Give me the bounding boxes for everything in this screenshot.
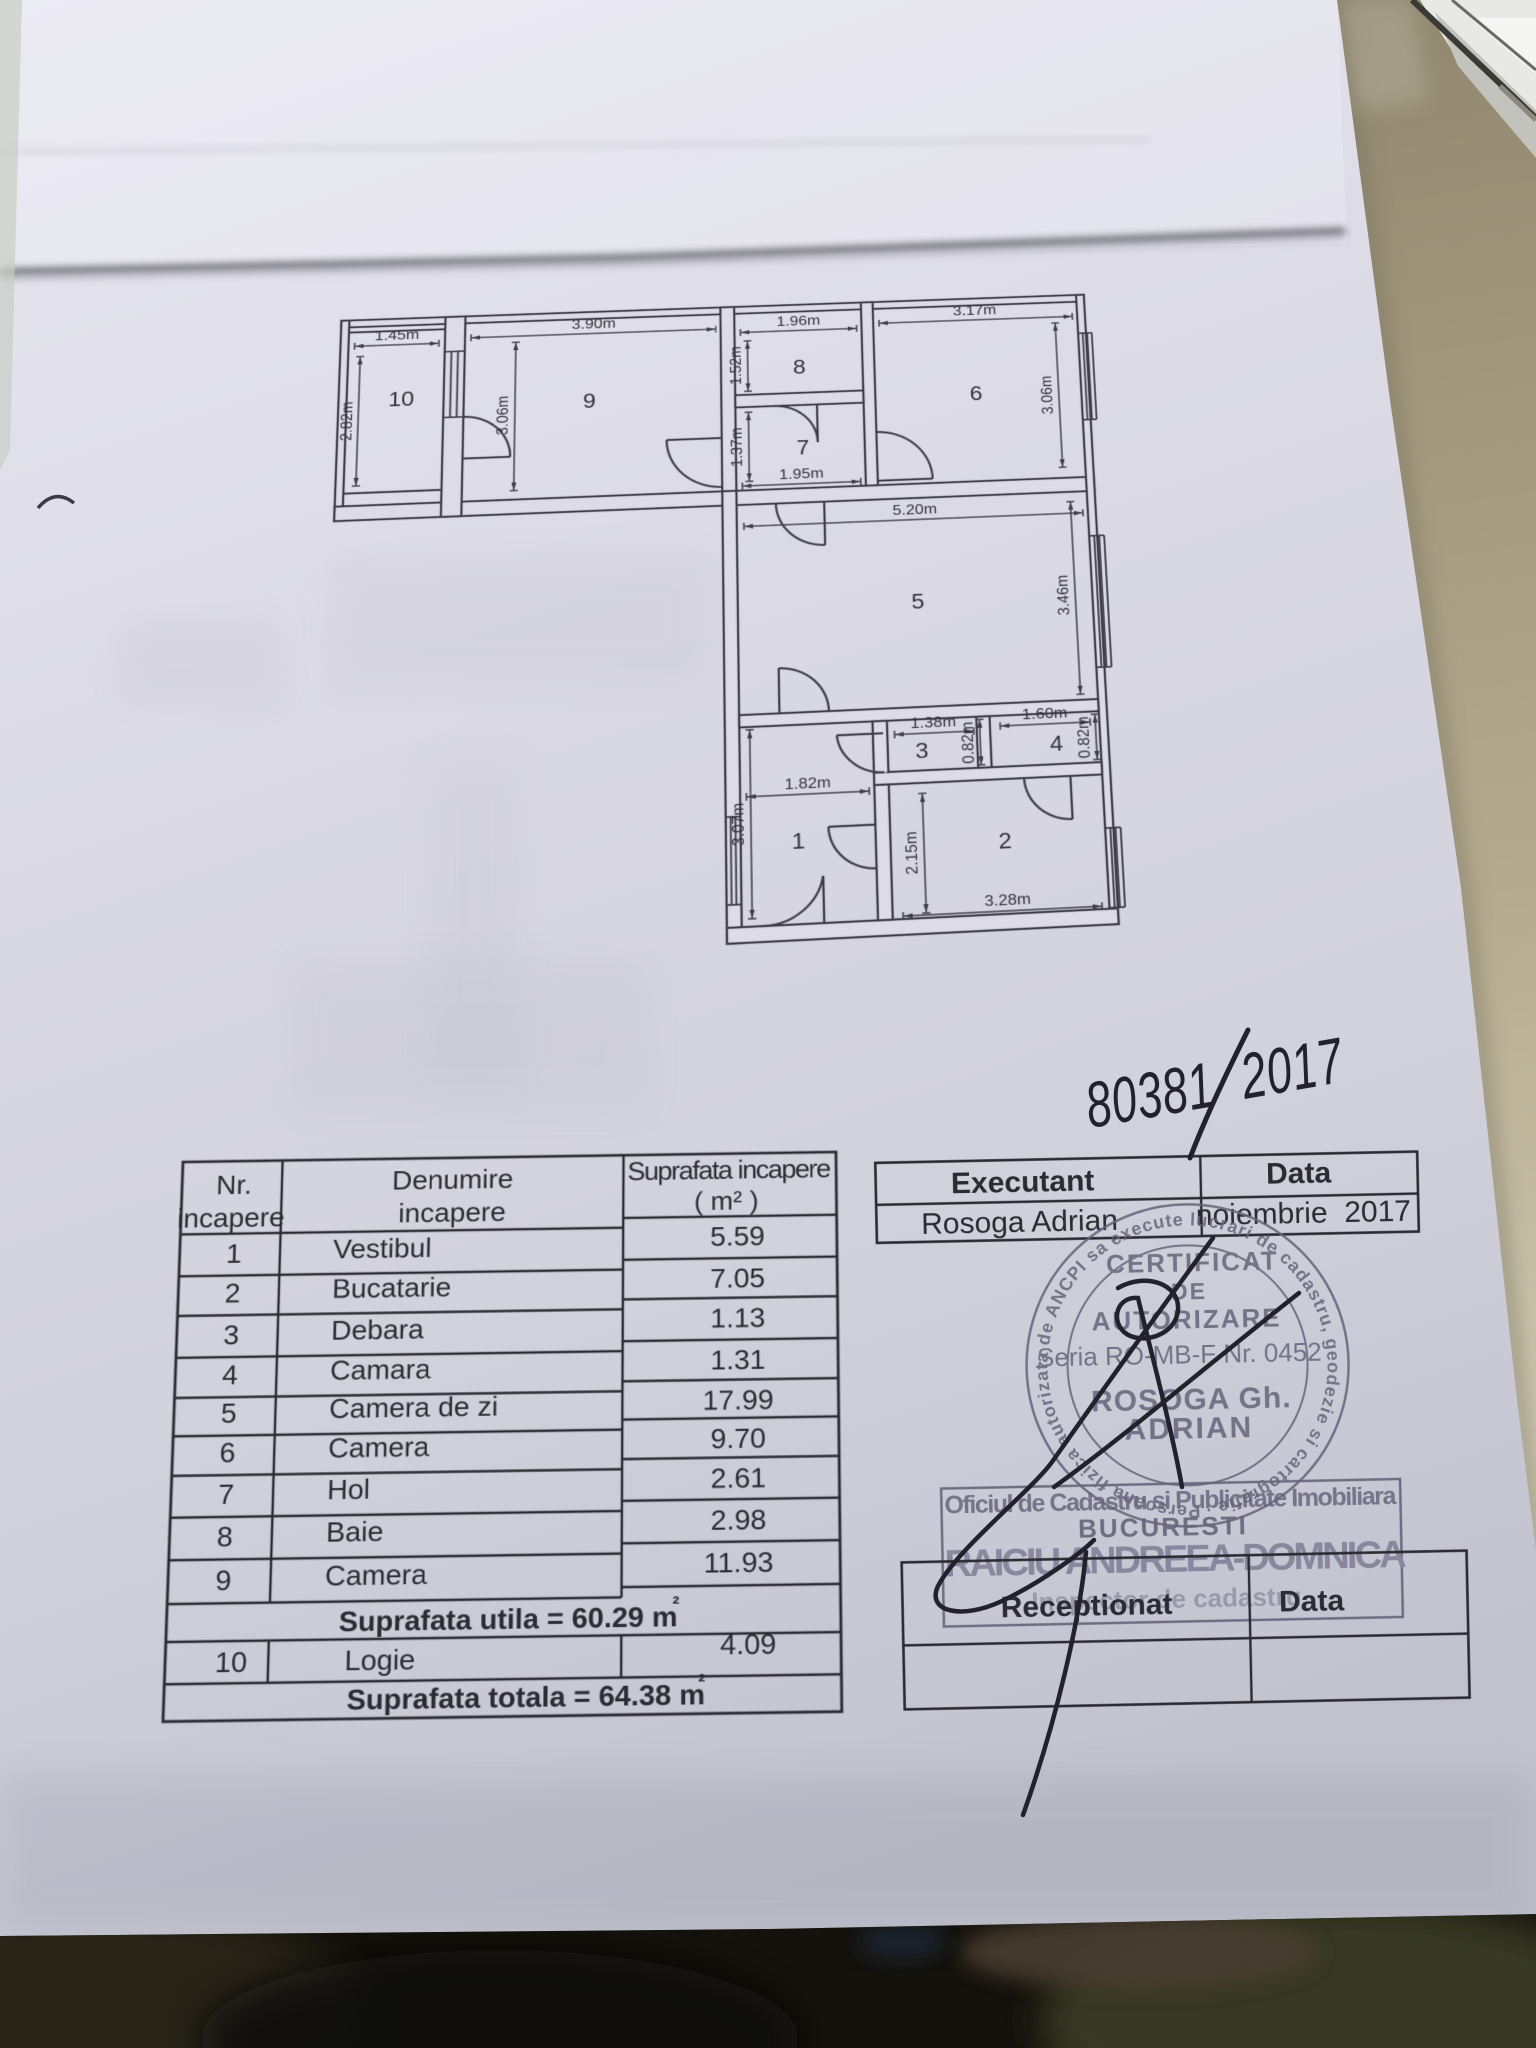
svg-text:2017: 2017 [1234, 1024, 1350, 1113]
svg-text:80381: 80381 [1080, 1049, 1219, 1142]
